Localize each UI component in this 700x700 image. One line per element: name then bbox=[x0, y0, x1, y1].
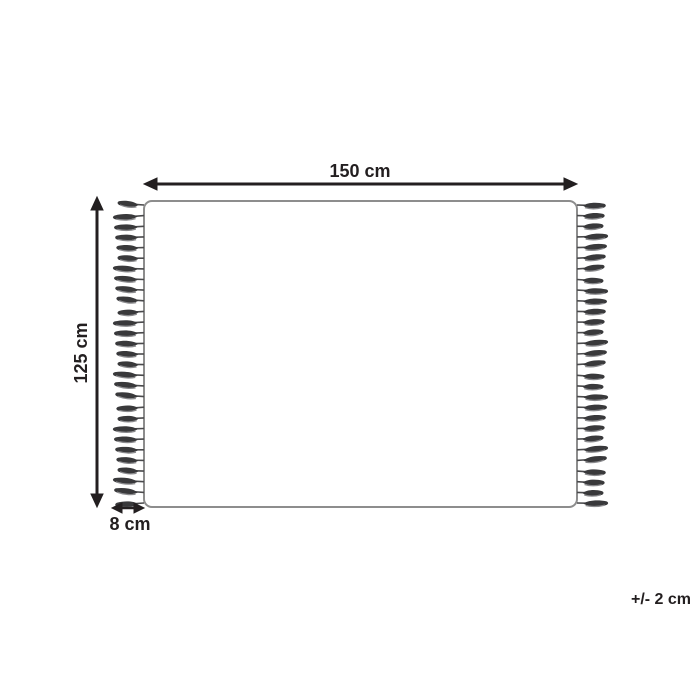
tassel bbox=[577, 233, 608, 240]
tassel-anchor-right bbox=[577, 298, 607, 305]
tassel-anchor-right bbox=[577, 383, 604, 391]
tassel bbox=[114, 381, 144, 389]
height-arrowhead-bottom bbox=[91, 494, 103, 507]
tassel-anchor-right bbox=[577, 489, 604, 496]
tassel-anchor-right bbox=[577, 415, 606, 421]
tassel bbox=[116, 457, 144, 464]
tassel bbox=[577, 360, 606, 368]
tassel bbox=[115, 340, 144, 347]
width-arrowhead-left bbox=[144, 178, 157, 190]
tassel bbox=[577, 223, 604, 229]
fringe-arrowhead-right bbox=[134, 503, 144, 513]
tolerance-label: +/- 2 cm bbox=[631, 591, 691, 608]
tassel bbox=[116, 245, 144, 252]
tassel-anchor-right bbox=[577, 287, 608, 295]
tassel-anchor-right bbox=[577, 254, 606, 262]
tassel-anchor-right bbox=[577, 223, 604, 229]
tassel-anchor-left bbox=[113, 477, 144, 485]
tassel bbox=[577, 468, 606, 476]
right-fringe bbox=[577, 202, 608, 507]
tassel bbox=[115, 234, 144, 241]
tassel bbox=[577, 394, 608, 401]
tassel-anchor-right bbox=[577, 404, 607, 411]
tassel-anchor-left bbox=[117, 467, 144, 474]
tassel-anchor-left bbox=[115, 286, 144, 294]
tassel-anchor-left bbox=[117, 255, 144, 261]
tassel bbox=[577, 455, 607, 463]
tassel bbox=[577, 298, 607, 305]
tassel bbox=[117, 255, 144, 261]
tassel-anchor-left bbox=[117, 415, 144, 423]
tassel-anchor-left bbox=[115, 447, 144, 453]
tassel bbox=[113, 426, 144, 433]
tassel bbox=[113, 265, 144, 272]
tassel-anchor-left bbox=[116, 351, 144, 357]
tassel-anchor-left bbox=[115, 340, 144, 347]
left-fringe bbox=[113, 200, 144, 508]
tassel-anchor-right bbox=[577, 479, 605, 487]
tassel-anchor-right bbox=[577, 244, 607, 251]
tassel bbox=[577, 500, 608, 507]
tassel-anchor-right bbox=[577, 445, 608, 453]
width-arrowhead-right bbox=[564, 178, 577, 190]
tassel bbox=[577, 287, 608, 295]
tassel bbox=[113, 319, 144, 327]
tassel bbox=[116, 404, 144, 412]
tassel-anchor-left bbox=[114, 276, 144, 283]
tassel bbox=[577, 404, 607, 411]
tassel bbox=[115, 286, 144, 294]
tassel bbox=[577, 445, 608, 453]
tassel-anchor-left bbox=[114, 487, 144, 495]
tassel bbox=[116, 351, 144, 357]
tassel-anchor-right bbox=[577, 435, 604, 442]
tassel-anchor-left bbox=[114, 223, 144, 231]
rug-dimension-diagram-page: 150 cm 125 cm 8 cm +/- 2 cm bbox=[0, 0, 700, 700]
tassel bbox=[577, 254, 606, 262]
tassel bbox=[577, 329, 604, 336]
tassel bbox=[577, 479, 605, 487]
tassel bbox=[577, 213, 605, 220]
tassel-anchor-right bbox=[577, 233, 608, 240]
width-label: 150 cm bbox=[329, 161, 390, 181]
rug-outline bbox=[144, 201, 577, 507]
tassel bbox=[117, 361, 144, 368]
tassel-anchor-right bbox=[577, 277, 604, 285]
tassel bbox=[115, 447, 144, 453]
tassel-anchor-left bbox=[115, 392, 144, 400]
tassel bbox=[114, 436, 144, 443]
tassel-anchor-left bbox=[114, 381, 144, 389]
tassel-anchor-right bbox=[577, 213, 605, 220]
tassel-anchor-right bbox=[577, 319, 605, 325]
tassel-anchor-right bbox=[577, 425, 605, 432]
tassel bbox=[577, 319, 605, 325]
tassel bbox=[577, 308, 606, 315]
tassel-anchor-left bbox=[116, 457, 144, 464]
tassel-anchor-left bbox=[116, 245, 144, 252]
tassel bbox=[577, 425, 605, 432]
rug-dimension-diagram: 150 cm 125 cm 8 cm +/- 2 cm bbox=[0, 0, 700, 700]
tassel-anchor-right bbox=[577, 349, 607, 357]
tassel bbox=[113, 477, 144, 485]
tassel bbox=[577, 372, 605, 380]
tassel bbox=[116, 296, 144, 304]
tassel bbox=[577, 339, 608, 346]
tassel-anchor-right bbox=[577, 329, 604, 336]
tassel-anchor-left bbox=[117, 361, 144, 368]
tassel-anchor-right bbox=[577, 372, 605, 380]
tassel-anchor-left bbox=[113, 213, 144, 221]
tassel bbox=[577, 277, 604, 285]
tassel-anchor-right bbox=[577, 468, 606, 476]
tassel-anchor-right bbox=[577, 308, 606, 315]
tassel bbox=[114, 487, 144, 495]
tassel-anchor-left bbox=[113, 265, 144, 272]
tassel bbox=[114, 330, 144, 337]
tassel bbox=[117, 467, 144, 474]
tassel-anchor-right bbox=[577, 360, 606, 368]
tassel bbox=[577, 489, 604, 496]
tassel bbox=[113, 213, 144, 221]
tassel bbox=[114, 276, 144, 283]
tassel bbox=[117, 200, 144, 208]
tassel bbox=[117, 415, 144, 423]
fringe-label: 8 cm bbox=[109, 514, 150, 534]
tassel-anchor-left bbox=[117, 308, 144, 316]
tassel bbox=[117, 308, 144, 316]
tassel-anchor-left bbox=[113, 319, 144, 327]
tassel-anchor-left bbox=[117, 200, 144, 208]
tassel-anchor-left bbox=[114, 330, 144, 337]
tassel-anchor-left bbox=[113, 371, 144, 378]
tassel-anchor-left bbox=[115, 234, 144, 241]
tassel-anchor-right bbox=[577, 500, 608, 507]
tassel-anchor-left bbox=[116, 296, 144, 304]
tassel-anchor-left bbox=[114, 436, 144, 443]
tassel bbox=[577, 202, 606, 209]
tassel-anchor-right bbox=[577, 455, 607, 463]
tassel bbox=[577, 349, 607, 357]
tassel-anchor-right bbox=[577, 264, 605, 272]
tassel bbox=[115, 392, 144, 400]
tassel-anchor-right bbox=[577, 202, 606, 209]
tassel bbox=[577, 415, 606, 421]
tassel bbox=[577, 244, 607, 251]
height-label: 125 cm bbox=[71, 322, 91, 383]
tassel-anchor-right bbox=[577, 339, 608, 346]
tassel-anchor-left bbox=[113, 426, 144, 433]
tassel-anchor-right bbox=[577, 394, 608, 401]
tassel bbox=[113, 371, 144, 378]
tassel bbox=[577, 383, 604, 391]
height-dimension-arrow bbox=[91, 197, 103, 507]
height-arrowhead-top bbox=[91, 197, 103, 210]
tassel-anchor-left bbox=[116, 404, 144, 412]
tassel bbox=[114, 223, 144, 231]
tassel bbox=[577, 435, 604, 442]
tassel bbox=[577, 264, 605, 272]
